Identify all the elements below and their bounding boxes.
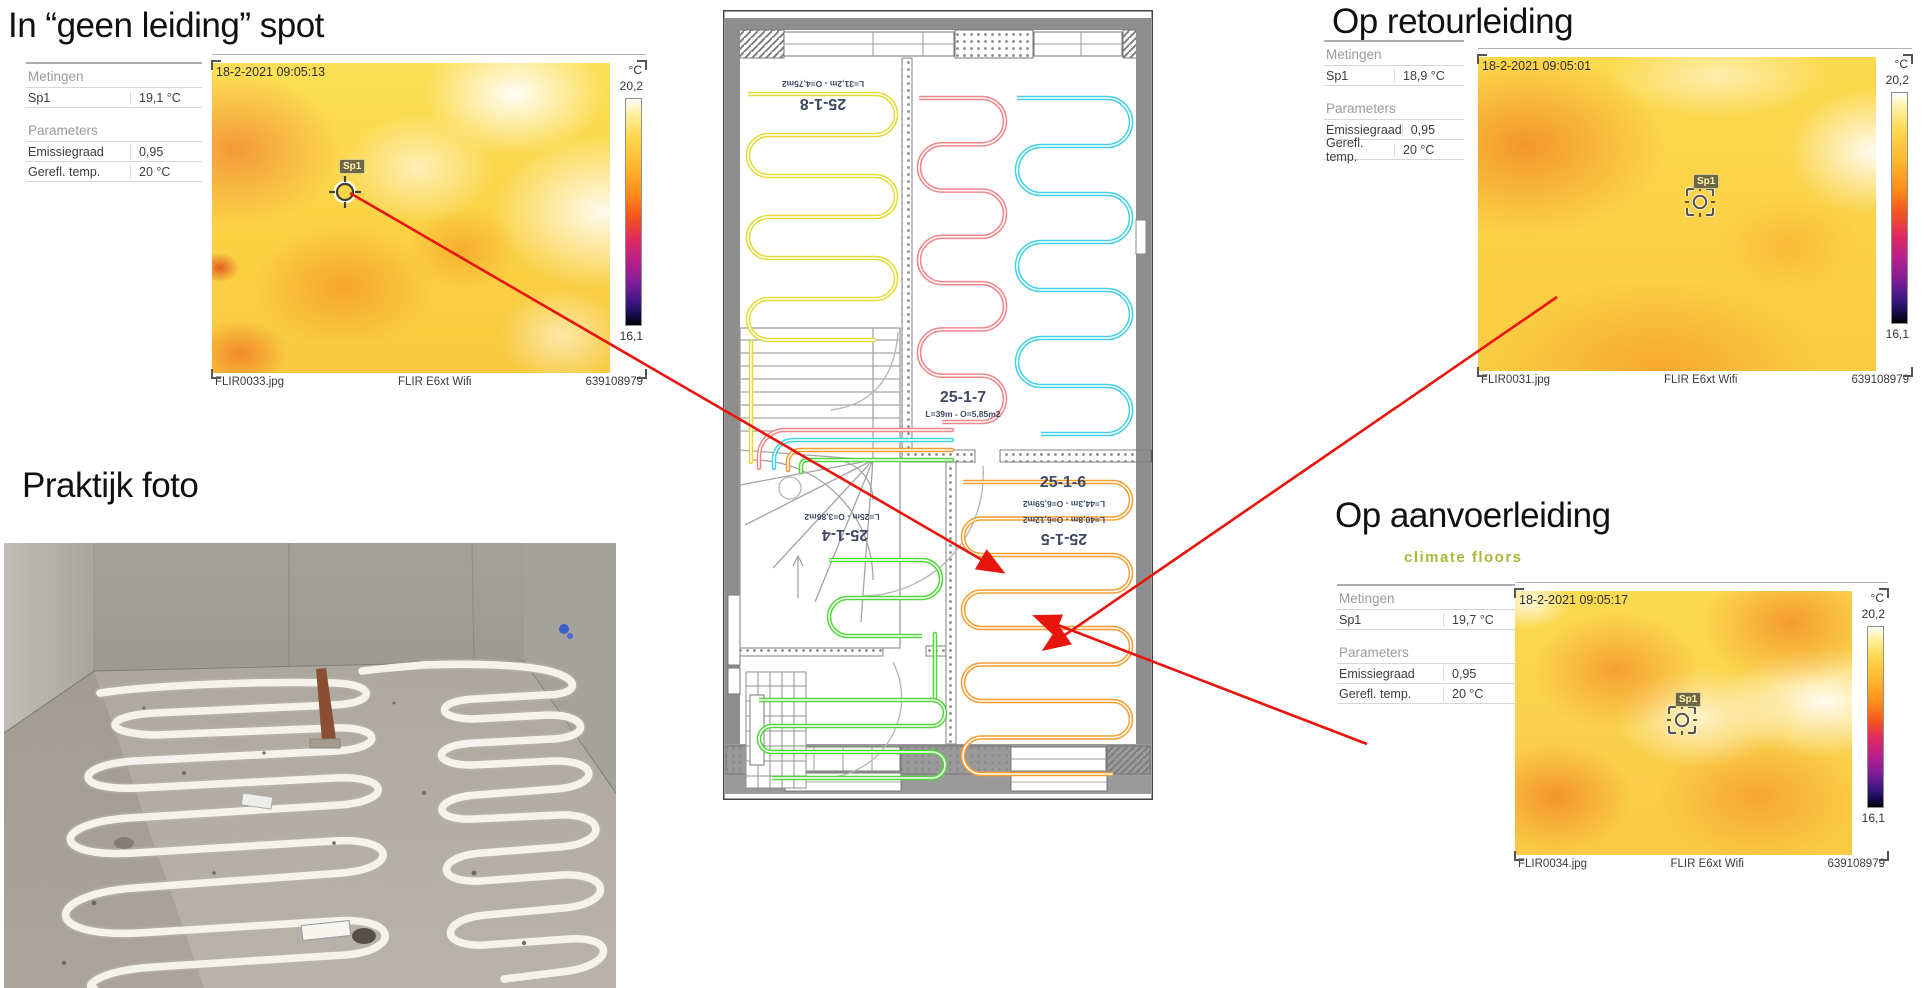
flir-camera: FLIR E6xt Wifi [1671, 858, 1744, 870]
scale-min: 16,1 [1876, 327, 1912, 341]
timestamp: 18-2-2021 09:05:13 [216, 65, 325, 79]
refl-temp-value: 20 °C [1443, 687, 1517, 701]
refl-temp-label: Gerefl. temp. [26, 165, 130, 179]
sp1-label: Sp1 [1337, 613, 1443, 627]
emissivity-value: 0,95 [1443, 667, 1517, 681]
flir-serial: 639108979 [1827, 858, 1885, 870]
loop-dims: L=40,8m - O=6,12m2 [1023, 515, 1105, 525]
temperature-scale: °C 20,2 16,1 [1876, 57, 1912, 341]
flir-filename: FLIR0034.jpg [1518, 858, 1587, 870]
emissivity-label: Emissiegraad [26, 145, 130, 159]
thermal-image-flir33: 18-2-2021 09:05:13 Sp1 [212, 63, 610, 373]
title-retourleiding: Op retourleiding [1332, 2, 1573, 42]
flir-filename: FLIR0033.jpg [215, 376, 284, 388]
emissivity-value: 0,95 [1402, 123, 1464, 137]
loop-label: 25-1-5 [1041, 530, 1087, 547]
loop-label: 25-1-8 [800, 95, 846, 112]
thermal-image-flir34: 18-2-2021 09:05:17 Sp1 [1515, 591, 1852, 855]
emissivity-value: 0,95 [130, 145, 202, 159]
refl-temp-row: Gerefl. temp. 20 °C [26, 162, 202, 182]
temperature-scale: °C 20,2 16,1 [1852, 591, 1888, 825]
sp1-value: 18,9 °C [1394, 69, 1464, 83]
timestamp: 18-2-2021 09:05:01 [1482, 59, 1591, 73]
metingen-header: Metingen [1337, 586, 1517, 610]
sp1-spot-tag: Sp1 [1675, 692, 1701, 707]
sp1-row: Sp1 19,7 °C [1337, 610, 1517, 630]
emissivity-row: Emissiegraad 0,95 [26, 142, 202, 162]
loop-dims: L=44,3m - O=6,59m2 [1023, 499, 1105, 509]
scale-gradient-bar [625, 98, 642, 326]
flir-footer: FLIR0034.jpg FLIR E6xt Wifi 639108979 [1515, 855, 1888, 873]
refl-temp-value: 20 °C [1394, 143, 1464, 157]
scale-min: 16,1 [610, 329, 646, 343]
metingen-header: Metingen [26, 64, 202, 88]
sp1-spot-marker: Sp1 [1667, 705, 1697, 740]
metingen-header: Metingen [1324, 42, 1464, 66]
loop-label: 25-1-7 [940, 389, 986, 406]
measurement-panel-retour: Metingen Sp1 18,9 °C Parameters Emissieg… [1324, 40, 1464, 160]
flir-serial: 639108979 [1851, 374, 1909, 386]
measurement-panel-geen-leiding: Metingen Sp1 19,1 °C Parameters Emissieg… [26, 62, 202, 182]
sp1-value: 19,1 °C [130, 91, 202, 105]
timestamp: 18-2-2021 09:05:17 [1519, 593, 1628, 607]
refl-temp-label: Gerefl. temp. [1324, 136, 1394, 164]
flir-filename: FLIR0031.jpg [1481, 374, 1550, 386]
refl-temp-value: 20 °C [130, 165, 202, 179]
refl-temp-label: Gerefl. temp. [1337, 687, 1443, 701]
sp1-value: 19,7 °C [1443, 613, 1517, 627]
thermal-widget-geen-leiding: 18-2-2021 09:05:13 Sp1 °C 20,2 16,1 FLI [212, 54, 646, 391]
parameters-header: Parameters [26, 118, 202, 142]
thermal-image-flir31: 18-2-2021 09:05:01 Sp1 [1478, 57, 1876, 371]
temperature-scale: °C 20,2 16,1 [610, 63, 646, 343]
measurement-panel-aanvoer: Metingen Sp1 19,7 °C Parameters Emissieg… [1337, 584, 1517, 704]
parameters-header: Parameters [1324, 96, 1464, 120]
title-aanvoerleiding: Op aanvoerleiding [1335, 496, 1611, 536]
sp1-box-marker-icon [1685, 187, 1715, 217]
scale-gradient-bar [1867, 626, 1884, 808]
refl-temp-row: Gerefl. temp. 20 °C [1337, 684, 1517, 704]
floor-plan: 25-1-8L=31,2m - O=4,75m225-1-7L=39m - O=… [723, 10, 1153, 800]
climate-floors-logo: climate floors [1404, 549, 1523, 566]
sp1-spot-tag: Sp1 [339, 159, 365, 174]
title-praktijk-foto: Praktijk foto [22, 466, 198, 506]
scale-max: 20,2 [1876, 73, 1912, 87]
flir-camera: FLIR E6xt Wifi [1664, 374, 1737, 386]
slide: In “geen leiding” spot Praktijk foto Op … [0, 0, 1932, 988]
blue-tape-mark [559, 624, 569, 634]
emissivity-row: Emissiegraad 0,95 [1337, 664, 1517, 684]
sp1-spot-marker: Sp1 [327, 174, 363, 215]
loop-dims: L=25m - O=3,86m2 [804, 512, 879, 522]
thermal-widget-retour: 18-2-2021 09:05:01 Sp1 °C 20,2 16,1 FLIR… [1478, 48, 1912, 389]
praktijk-photo [4, 543, 616, 988]
emissivity-label: Emissiegraad [1337, 667, 1443, 681]
sp1-spot-marker: Sp1 [1685, 187, 1715, 222]
scale-max: 20,2 [1852, 607, 1888, 621]
refl-temp-row: Gerefl. temp. 20 °C [1324, 140, 1464, 160]
emissivity-label: Emissiegraad [1324, 123, 1402, 137]
title-geen-leiding: In “geen leiding” spot [8, 6, 324, 46]
flir-footer: FLIR0033.jpg FLIR E6xt Wifi 639108979 [212, 373, 646, 391]
tile-floor [746, 672, 806, 788]
loop-dims: L=31,2m - O=4,75m2 [782, 79, 864, 89]
flir-camera: FLIR E6xt Wifi [398, 376, 471, 388]
loop-label: 25-1-4 [822, 526, 868, 543]
flir-footer: FLIR0031.jpg FLIR E6xt Wifi 639108979 [1478, 371, 1912, 389]
flir-serial: 639108979 [585, 376, 643, 388]
sp1-label: Sp1 [1324, 69, 1394, 83]
sp1-box-marker-icon [1667, 705, 1697, 735]
loop-label: 25-1-6 [1040, 474, 1086, 491]
sp1-crosshair-icon [327, 174, 363, 210]
scale-max: 20,2 [610, 79, 646, 93]
scale-min: 16,1 [1852, 811, 1888, 825]
sp1-row: Sp1 19,1 °C [26, 88, 202, 108]
loop-dims: L=39m - O=5.85m2 [925, 409, 1000, 419]
sp1-spot-tag: Sp1 [1693, 174, 1719, 189]
sp1-row: Sp1 18,9 °C [1324, 66, 1464, 86]
sp1-label: Sp1 [26, 91, 130, 105]
thermal-widget-aanvoer: 18-2-2021 09:05:17 Sp1 °C 20,2 16,1 FLIR… [1515, 582, 1888, 873]
scale-gradient-bar [1891, 92, 1908, 324]
parameters-header: Parameters [1337, 640, 1517, 664]
